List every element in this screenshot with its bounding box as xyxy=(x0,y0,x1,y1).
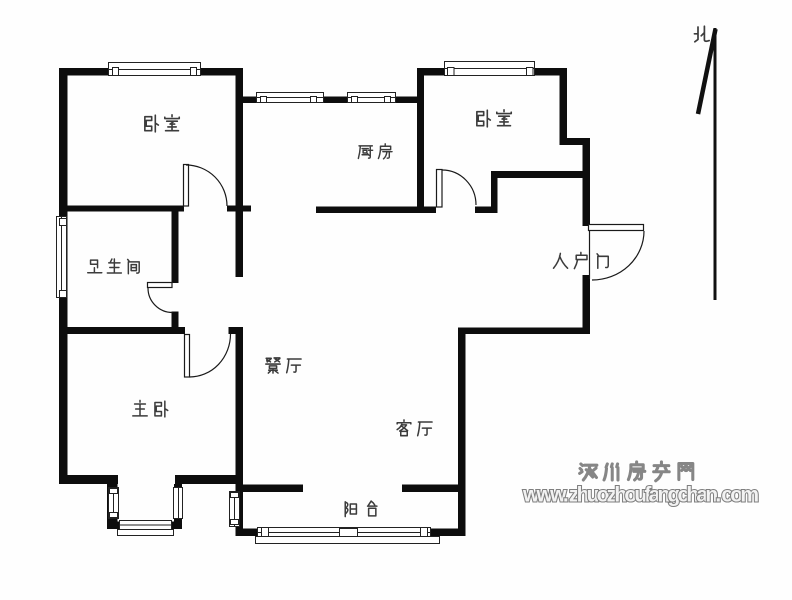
svg-text:www. zhuozhoufangchan. com: www. zhuozhoufangchan. com xyxy=(522,484,759,507)
